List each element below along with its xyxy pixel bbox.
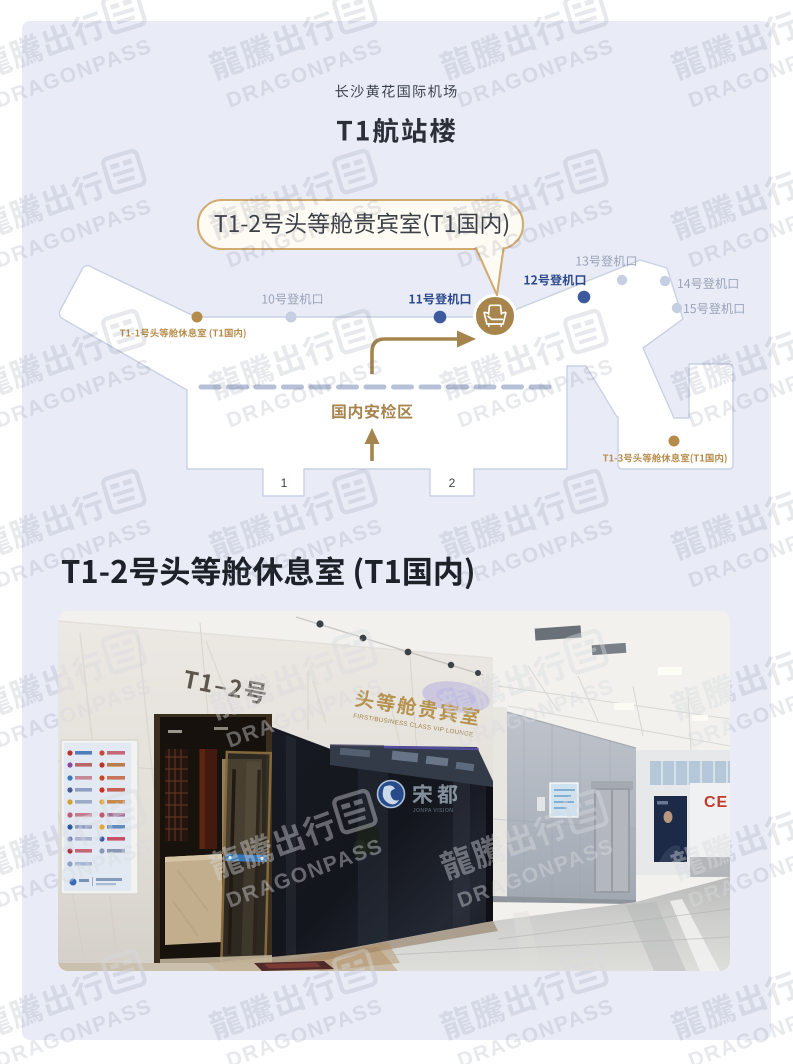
svg-text:2: 2 — [449, 476, 456, 490]
svg-text:1: 1 — [281, 476, 288, 490]
svg-text:JONPA VISION: JONPA VISION — [413, 808, 453, 814]
svg-text:CE: CE — [704, 794, 728, 811]
